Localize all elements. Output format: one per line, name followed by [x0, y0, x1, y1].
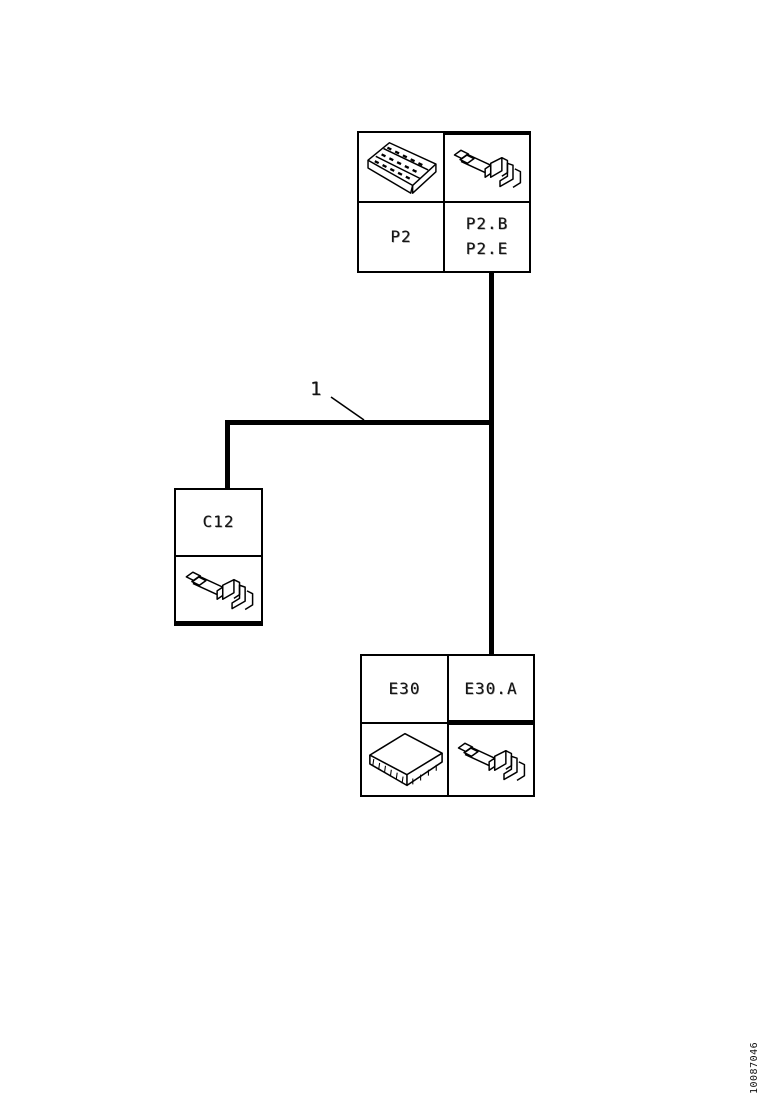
wire-branch-to-c12 [225, 420, 230, 490]
e30-terminal-image-cell [449, 724, 533, 795]
wire-terminal-icon [452, 731, 530, 789]
wire-terminal-icon [179, 561, 259, 617]
e30-terminal-label: E30.A [464, 677, 517, 702]
p2-terminal-label-line2: P2.E [466, 237, 509, 262]
p2-terminal-labels: P2.B P2.E [466, 212, 509, 262]
multi-pin-connector-icon [360, 135, 442, 199]
p2-terminal-image-cell [445, 133, 529, 203]
component-box-c12: C12 [174, 488, 263, 626]
p2-label: P2 [390, 225, 411, 250]
component-box-p2: P2 P2.B P2.E [357, 131, 531, 273]
wire-p2-to-e30 [489, 272, 494, 655]
wiring-diagram-canvas: P2 P2.B P2.E 1 C12 [0, 0, 779, 1100]
e30-terminal-label-cell: E30.A [449, 656, 533, 724]
c12-label-cell: C12 [176, 490, 261, 557]
document-number: 10087046 [749, 1038, 760, 1094]
p2-terminal-label-cell: P2.B P2.E [445, 203, 529, 271]
p2-terminal-label-line1: P2.B [466, 212, 509, 237]
p2-label-cell: P2 [359, 203, 445, 271]
control-module-icon [364, 727, 446, 793]
wire-number-label: 1 [310, 378, 321, 400]
p2-thick-edge [443, 131, 531, 135]
p2-connector-image-cell [359, 133, 445, 203]
component-box-e30: E30 E30.A [360, 654, 535, 797]
e30-label-cell: E30 [362, 656, 449, 724]
wire-harness-horizontal [225, 420, 494, 425]
e30-label: E30 [389, 677, 421, 702]
e30-module-image-cell [362, 724, 449, 795]
c12-label: C12 [203, 510, 235, 535]
wire-terminal-icon [448, 139, 526, 195]
c12-terminal-image-cell [176, 557, 261, 621]
e30-thick-edge [447, 720, 535, 725]
